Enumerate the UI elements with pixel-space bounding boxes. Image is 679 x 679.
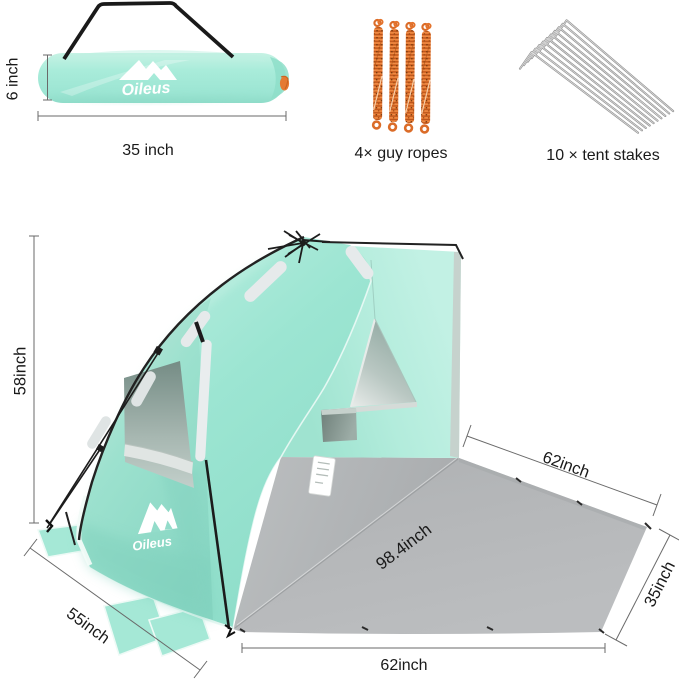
svg-text:62inch: 62inch bbox=[540, 448, 592, 482]
svg-text:62inch: 62inch bbox=[380, 657, 427, 674]
svg-text:10 × tent stakes: 10 × tent stakes bbox=[546, 147, 659, 164]
svg-text:Oileus: Oileus bbox=[121, 80, 171, 100]
svg-text:4× guy ropes: 4× guy ropes bbox=[355, 145, 448, 162]
svg-text:58inch: 58inch bbox=[12, 347, 30, 396]
svg-text:6 inch: 6 inch bbox=[5, 58, 22, 101]
svg-text:35inch: 35inch bbox=[641, 558, 679, 609]
svg-text:35 inch: 35 inch bbox=[122, 142, 174, 159]
